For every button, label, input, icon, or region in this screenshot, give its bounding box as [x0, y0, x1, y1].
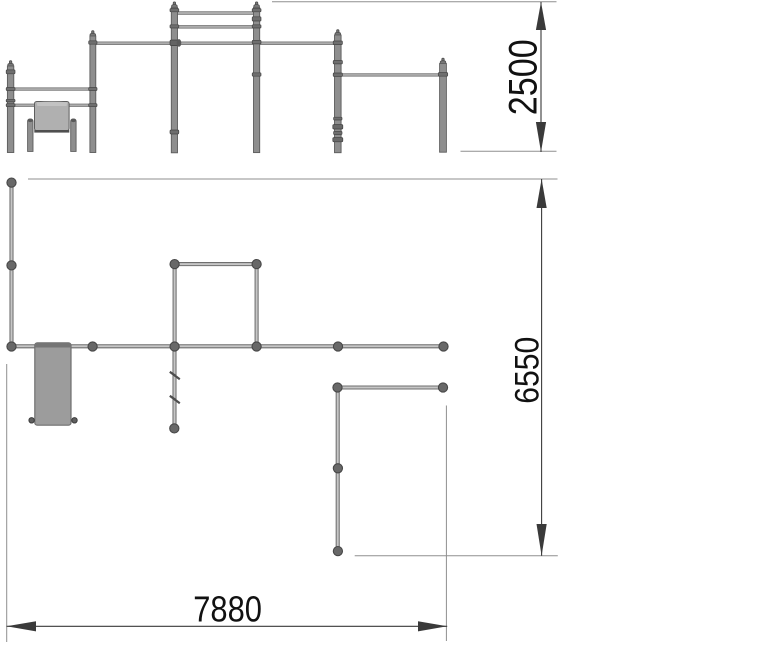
svg-text:6550: 6550: [508, 337, 546, 404]
svg-text:7880: 7880: [193, 588, 262, 629]
svg-text:2500: 2500: [500, 39, 545, 115]
